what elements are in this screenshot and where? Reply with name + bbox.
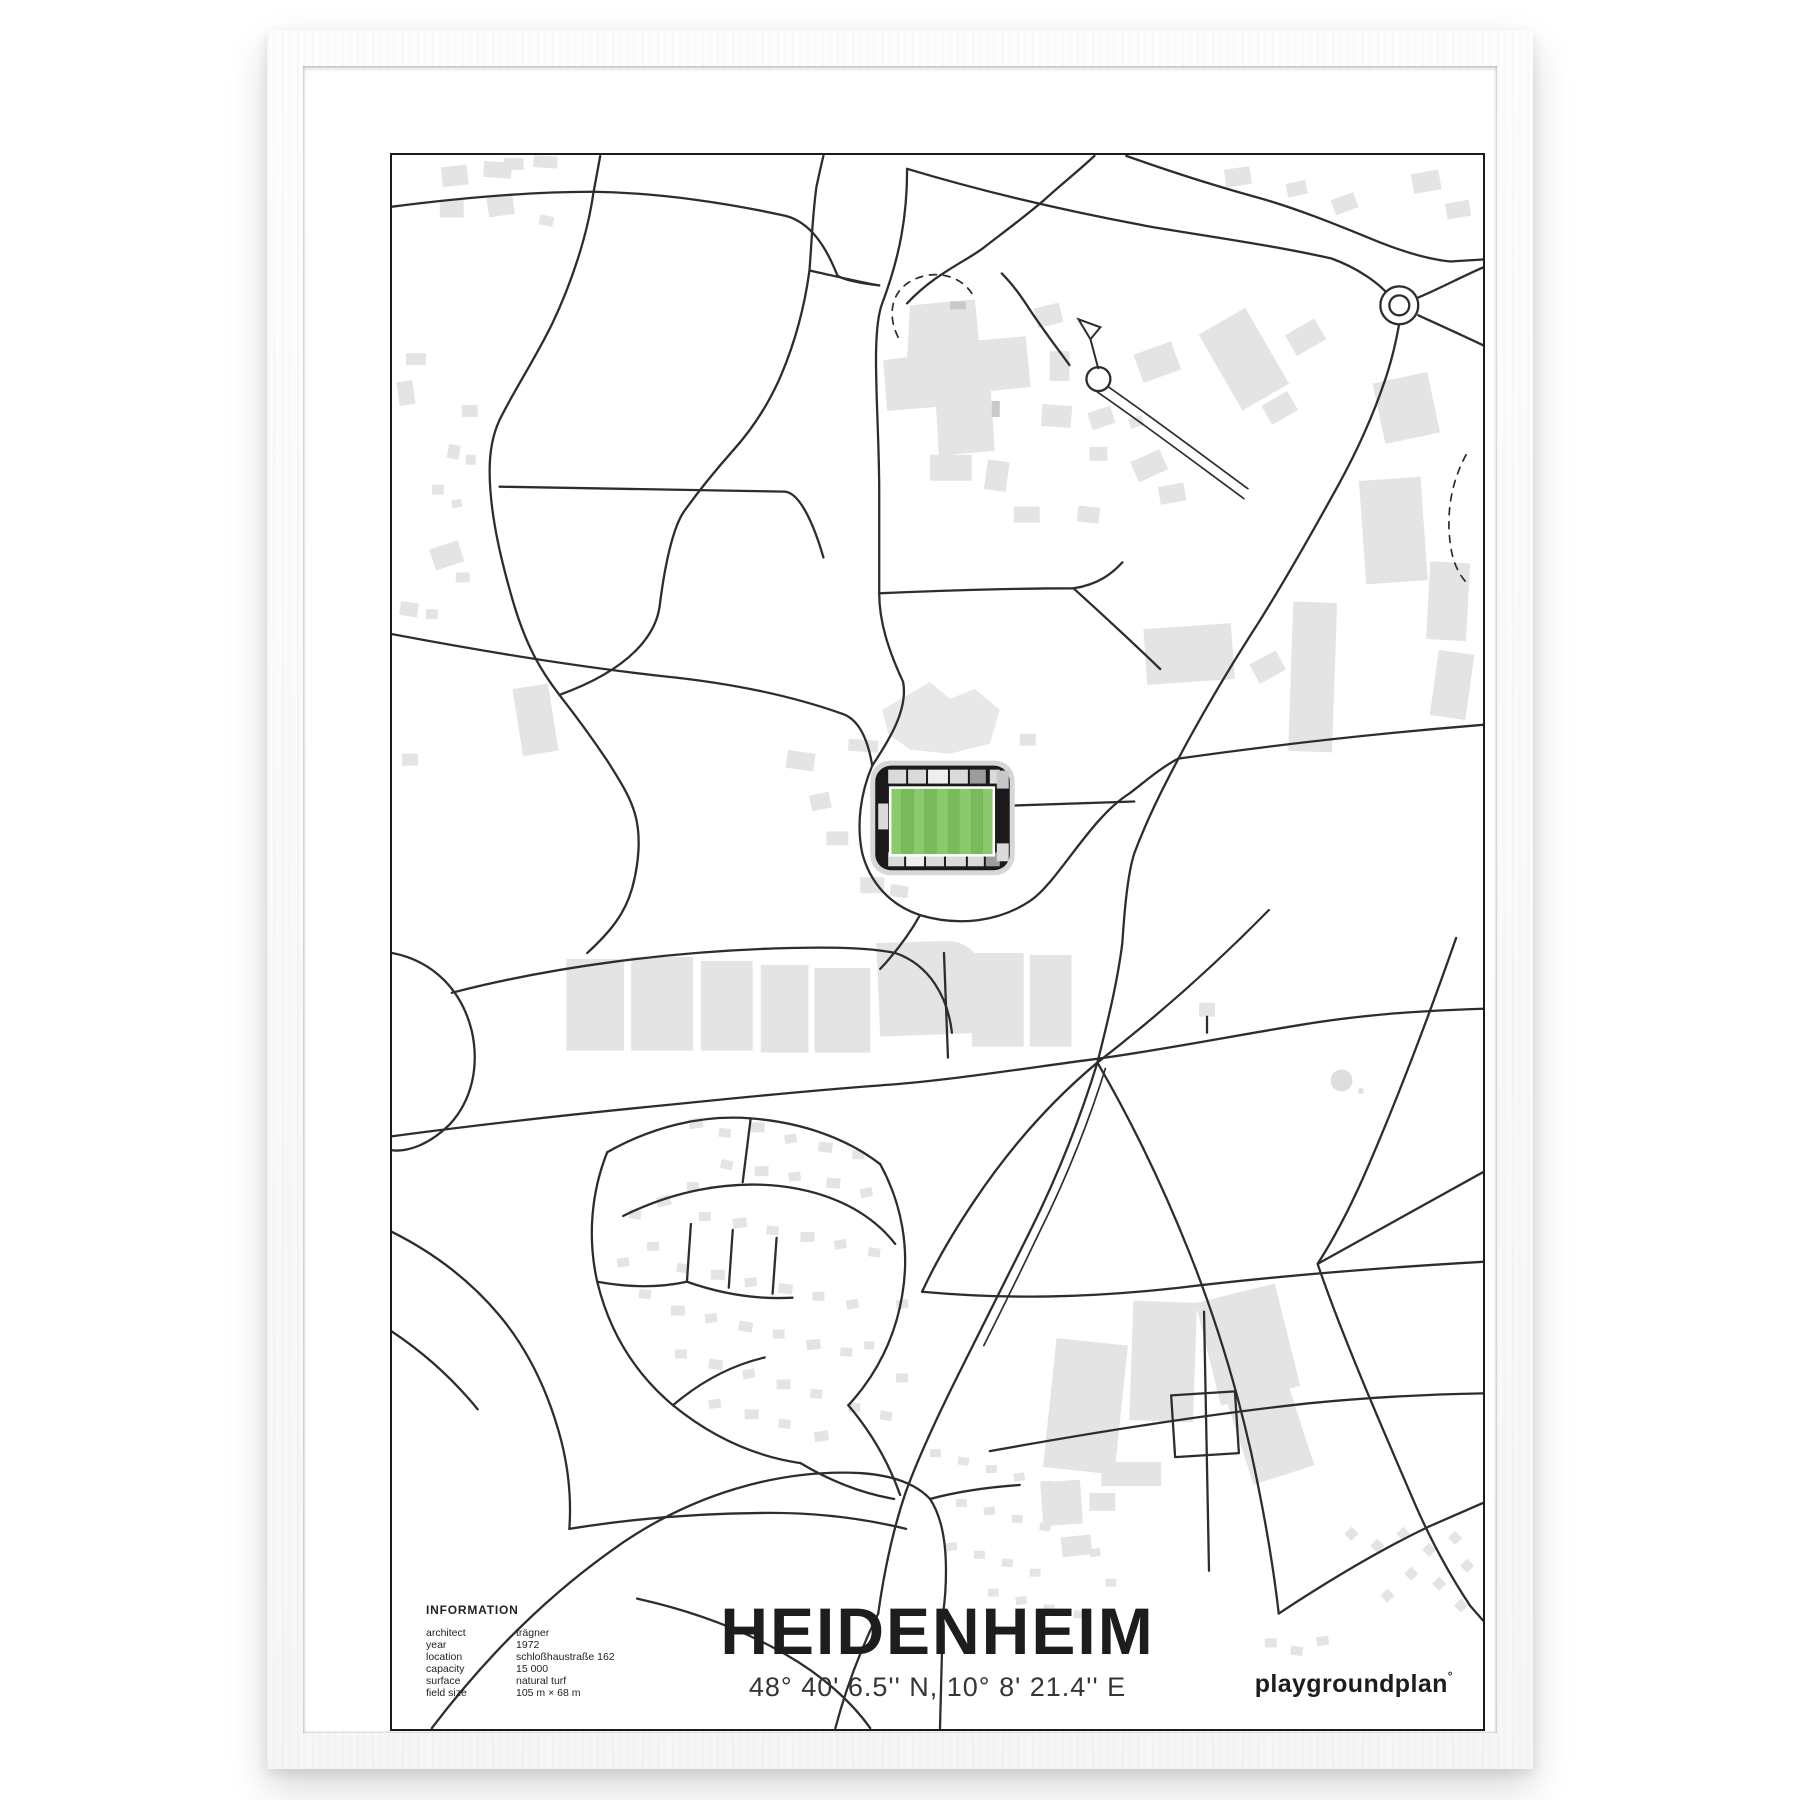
stadium-pitch: [890, 788, 994, 856]
roundabout-small-icon: [1086, 367, 1110, 391]
stadium: [870, 761, 1014, 876]
poster: INFORMATION architectträgner year1972 lo…: [390, 153, 1485, 1731]
mat-board: INFORMATION architectträgner year1972 lo…: [305, 68, 1495, 1731]
parallel-track: [984, 382, 1248, 1345]
poster-title: HEIDENHEIM: [392, 1598, 1483, 1664]
flag-icon: [1078, 319, 1100, 369]
brand-mark: °: [1448, 1669, 1453, 1683]
stadium-map-graphic: [392, 155, 1483, 1729]
brand-text: playgroundplan: [1255, 1670, 1448, 1698]
brand-logo: playgroundplan°: [1255, 1669, 1453, 1699]
picture-frame: INFORMATION architectträgner year1972 lo…: [267, 30, 1533, 1769]
